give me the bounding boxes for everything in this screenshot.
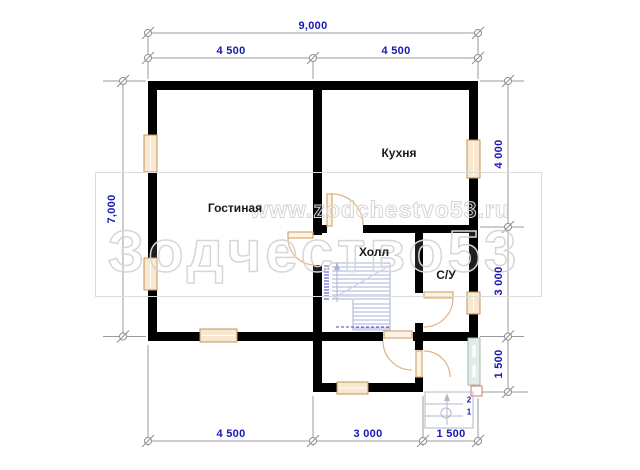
dimension-label-bottom-seg3: 1 500: [436, 428, 465, 440]
window-symbol: [200, 329, 237, 342]
window-symbol: [144, 135, 157, 172]
dimension-label-left-total: 7,000: [106, 194, 118, 223]
window-symbol: [337, 382, 368, 394]
dimension-label-top-total: 9,000: [298, 20, 327, 32]
room-label-living: Гостиная: [208, 201, 262, 215]
dimension-label-right-seg2: 3 000: [493, 266, 505, 295]
door-symbol: [383, 331, 412, 370]
floor-plan-canvas: www.zodchestvo53.ru Зодчество53 Гостиная…: [0, 0, 640, 470]
room-label-wc: С/У: [436, 268, 455, 282]
dimension-label-right-seg1: 4 000: [493, 139, 505, 168]
dimension-label-top-seg1: 4 500: [216, 45, 245, 57]
dimension-label-right-seg3: 1 500: [493, 349, 505, 378]
step-number-2: 2: [467, 396, 471, 405]
step-number-1: 1: [467, 408, 471, 417]
room-label-kitchen: Кухня: [381, 146, 416, 160]
watermark-brand: Зодчество53: [108, 219, 520, 286]
dimension-label-bottom-seg2: 3 000: [353, 428, 382, 440]
dimension-label-top-seg2: 4 500: [381, 45, 410, 57]
door-symbol: [416, 351, 450, 377]
dimension-label-bottom-seg1: 4 500: [216, 428, 245, 440]
door-symbol: [424, 292, 453, 327]
glazed-panel: [468, 338, 480, 385]
room-label-hall: Холл: [359, 245, 389, 259]
